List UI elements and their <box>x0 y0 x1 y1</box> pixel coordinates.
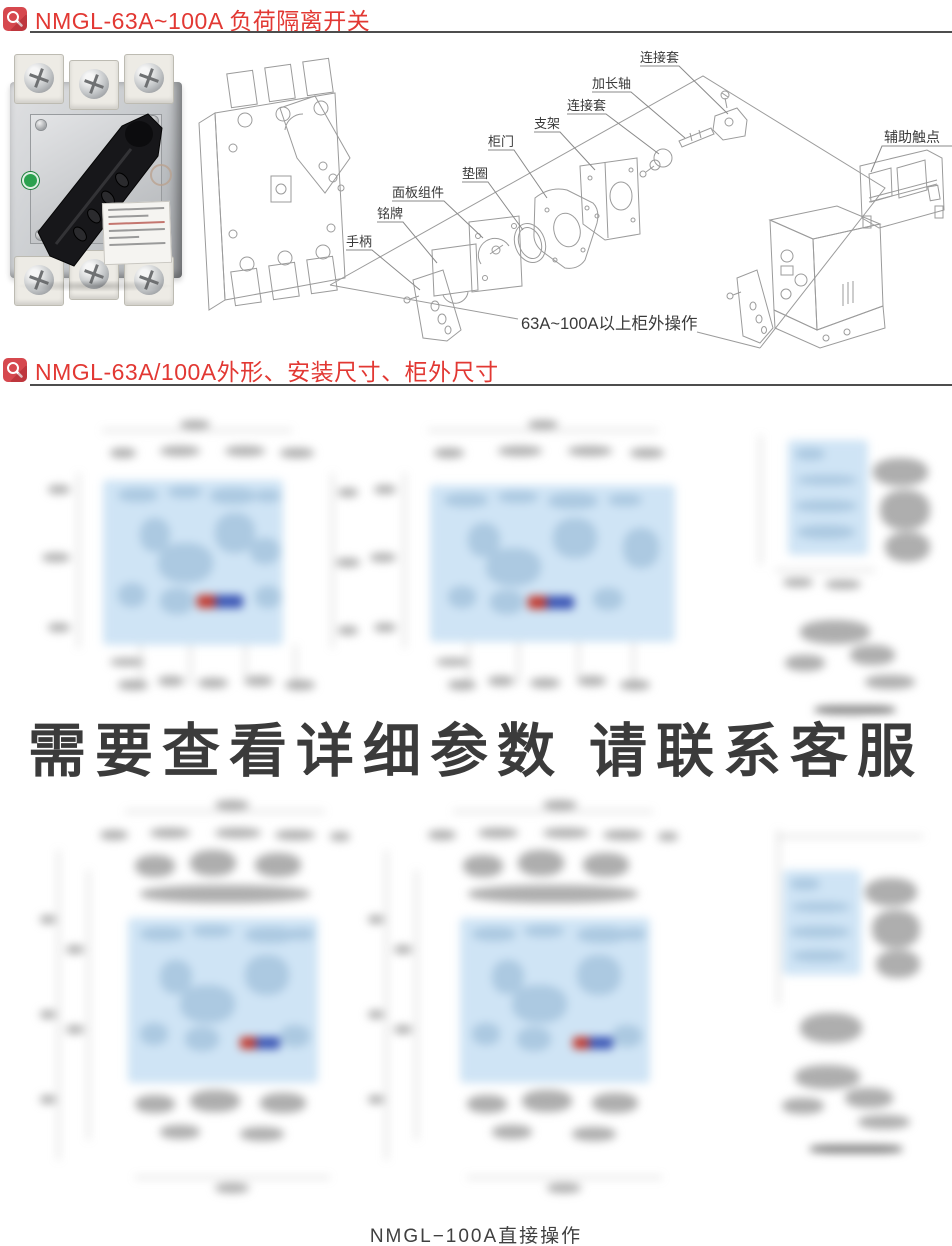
exploded-caption: 63A~100A以上柜外操作 <box>521 314 698 333</box>
label-connector-sleeve-1: 连接套 <box>640 50 679 65</box>
dimension-figure-blurred-2 <box>368 418 690 708</box>
label-cabinet-door: 柜门 <box>488 134 514 149</box>
dimension-figure-blurred-3 <box>40 795 365 1195</box>
product-photo <box>8 52 188 307</box>
exploded-parts <box>404 91 944 348</box>
section1-divider <box>30 31 952 33</box>
exploded-view-diagram: 连接套 加长轴 连接套 支架 柜门 垫圈 面板组件 铭牌 手柄 辅助触点 63A… <box>185 38 952 350</box>
side-view-figure-blurred-2 <box>750 830 950 1190</box>
label-connector-sleeve-2: 连接套 <box>567 98 606 113</box>
photo-shadow <box>16 280 174 292</box>
section2-header: NMGL-63A/100A外形、安装尺寸、柜外尺寸 <box>3 353 499 387</box>
label-panel-assembly: 面板组件 <box>392 185 444 200</box>
label-gasket: 垫圈 <box>462 166 488 181</box>
dimension-figure-blurred-4 <box>368 795 690 1195</box>
section2-divider <box>30 384 952 386</box>
product-datasheet-page: NMGL-63A~100A 负荷隔离开关 <box>0 0 952 1246</box>
label-auxiliary-contact: 辅助触点 <box>884 129 940 145</box>
figure-caption-direct-operation: NMGL−100A直接操作 <box>0 1221 952 1246</box>
terminal-top <box>124 54 174 104</box>
rating-label <box>102 201 172 265</box>
callout-leaders <box>346 66 952 290</box>
terminal-top <box>14 54 64 104</box>
label-handle: 手柄 <box>346 234 372 249</box>
magnifier-icon <box>3 7 27 31</box>
side-view-figure-blurred-1 <box>755 420 952 720</box>
label-nameplate: 铭牌 <box>377 206 403 221</box>
mounting-plane <box>330 76 885 348</box>
switch-line-art <box>199 58 350 310</box>
terminal-top <box>69 60 119 110</box>
dimension-figure-blurred-1 <box>40 418 350 708</box>
magnifier-icon <box>3 358 27 382</box>
contact-service-notice: 需要查看详细参数 请联系客服 <box>0 704 952 788</box>
section2-title: NMGL-63A/100A外形、安装尺寸、柜外尺寸 <box>35 353 499 387</box>
label-bracket: 支架 <box>534 116 560 131</box>
label-extension-shaft: 加长轴 <box>592 76 631 91</box>
green-indicator <box>22 172 39 189</box>
